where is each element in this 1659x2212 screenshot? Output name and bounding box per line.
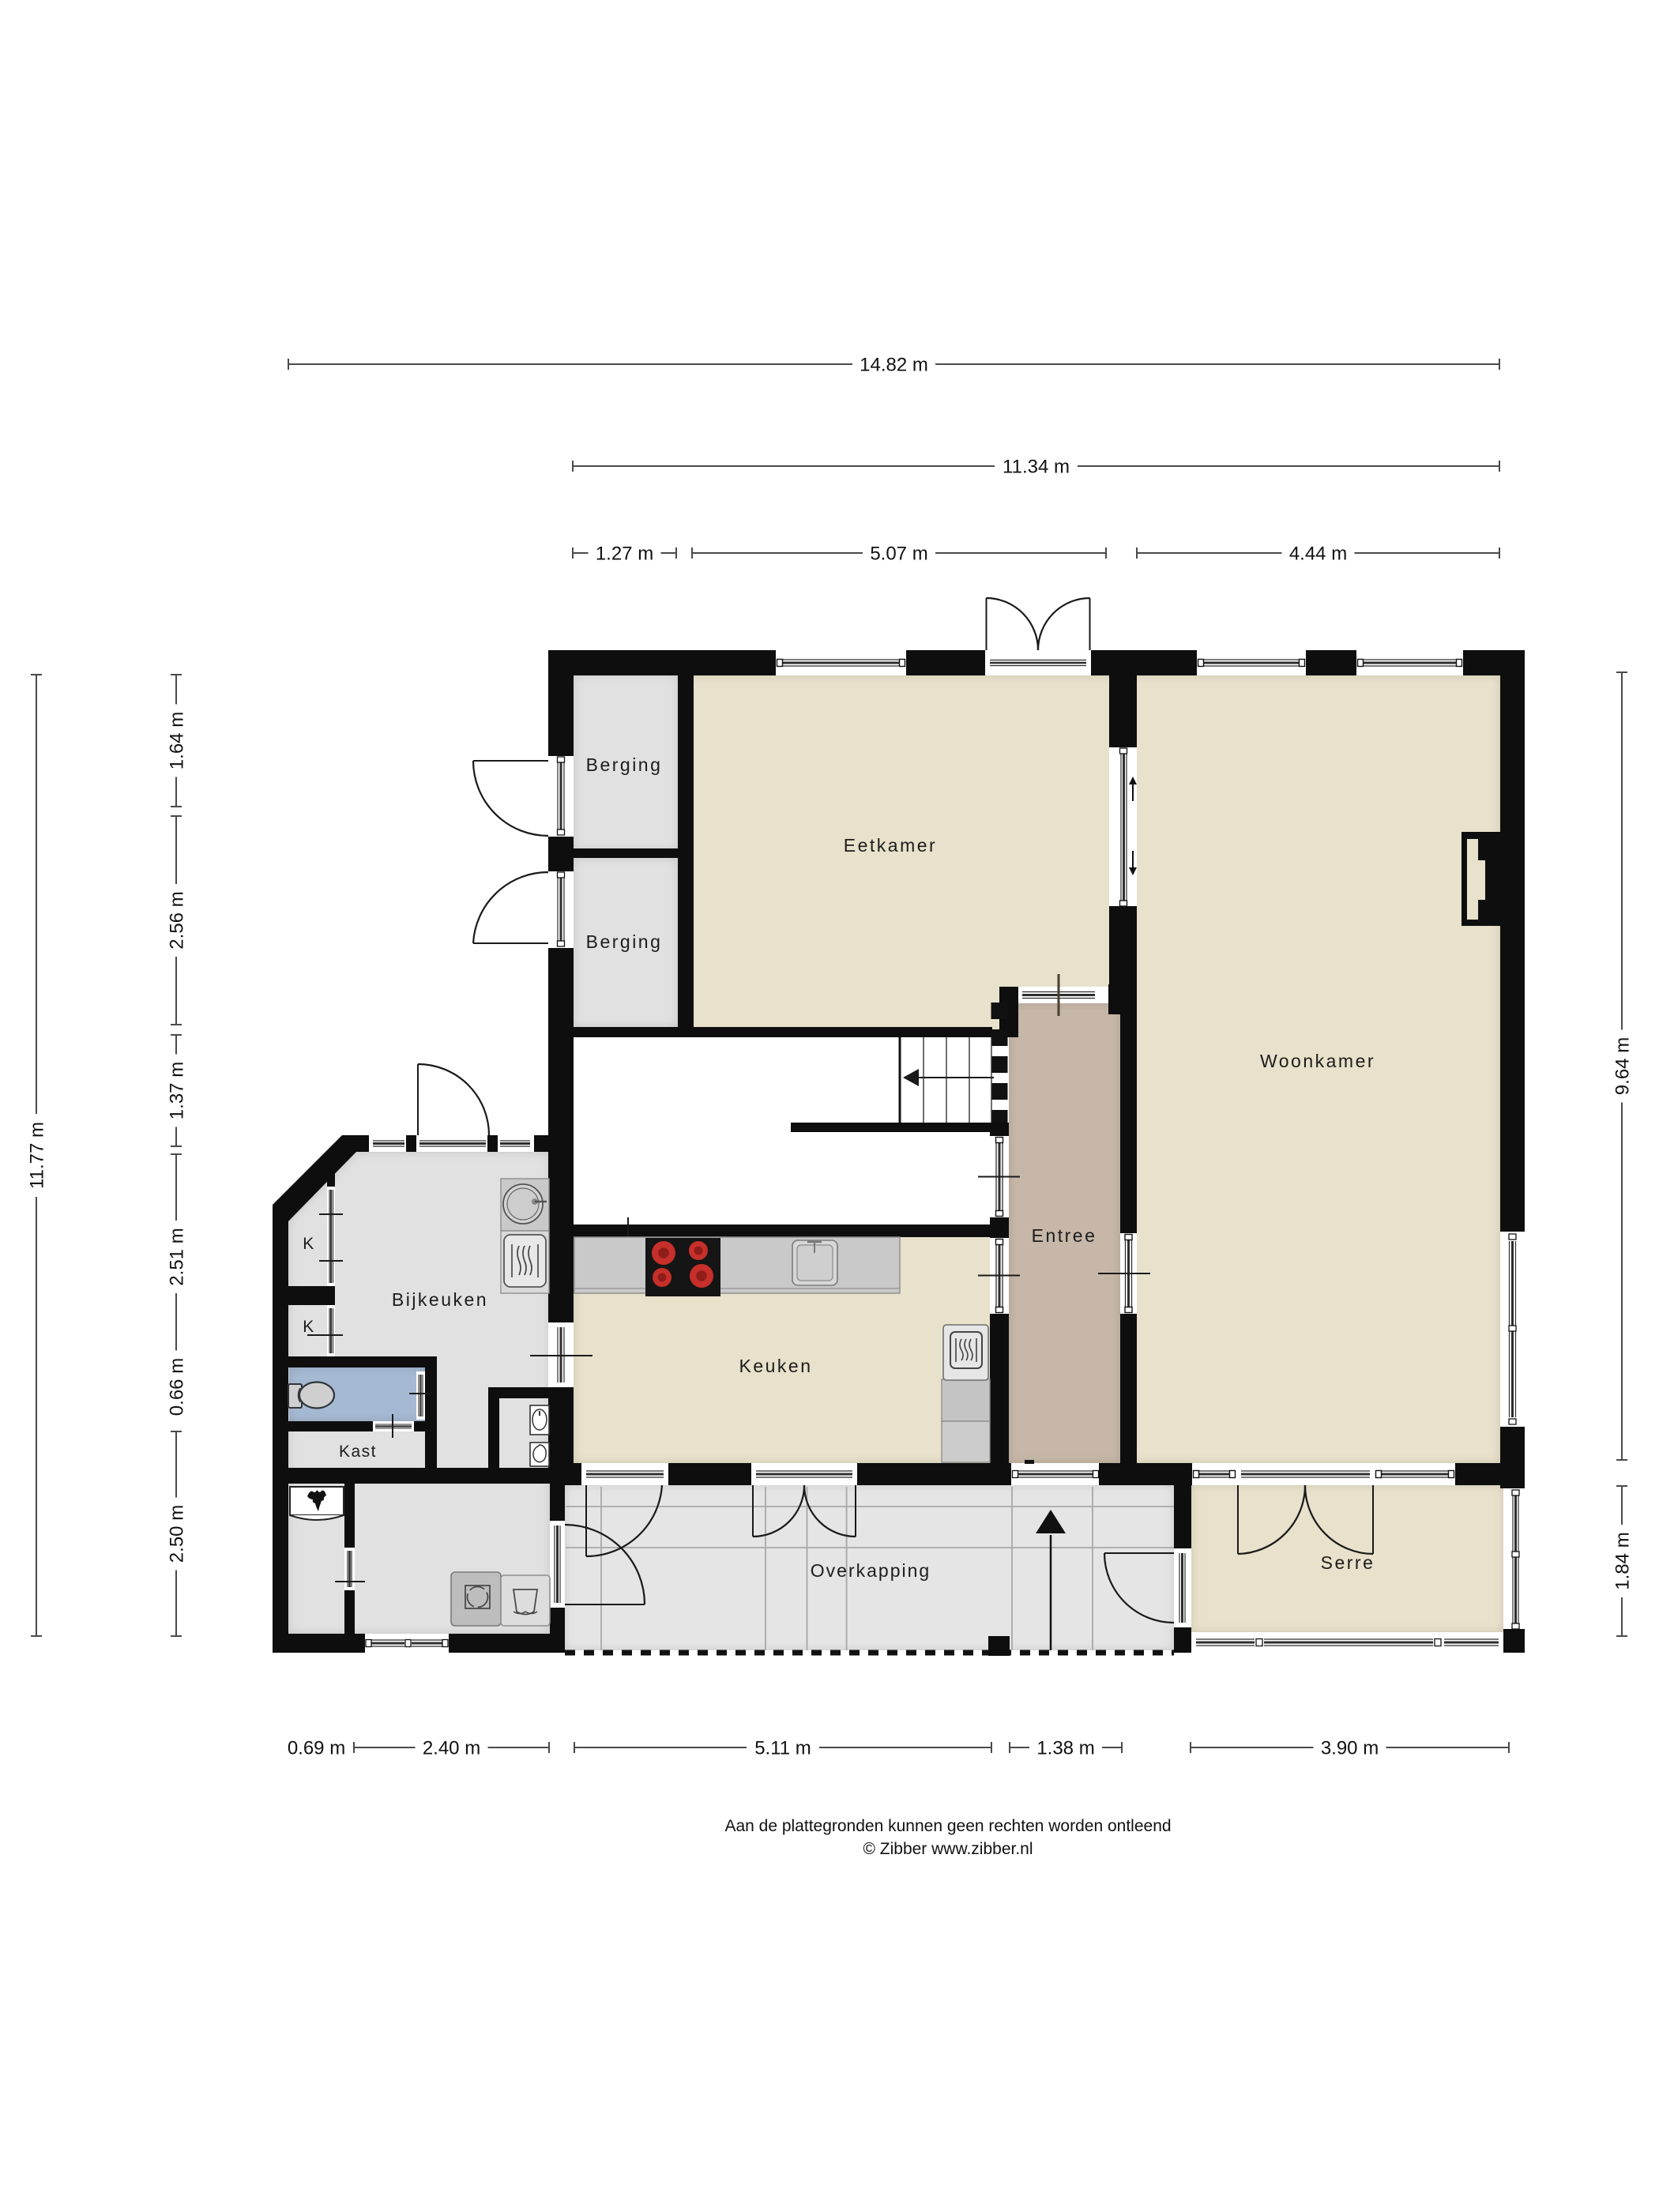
svg-text:11.34 m: 11.34 m — [1003, 457, 1070, 478]
svg-text:Woonkamer: Woonkamer — [1260, 1051, 1375, 1071]
svg-text:Keuken: Keuken — [739, 1356, 812, 1376]
svg-text:Berging: Berging — [586, 754, 663, 775]
svg-text:Berging: Berging — [586, 931, 663, 952]
svg-text:1.37 m: 1.37 m — [167, 1062, 188, 1119]
svg-text:5.11 m: 5.11 m — [754, 1738, 811, 1759]
svg-text:Bijkeuken: Bijkeuken — [392, 1289, 488, 1310]
svg-text:2.56 m: 2.56 m — [167, 891, 188, 949]
svg-text:5.07 m: 5.07 m — [870, 544, 927, 565]
svg-text:Eetkamer: Eetkamer — [844, 835, 937, 856]
svg-text:Entree: Entree — [1032, 1225, 1097, 1246]
svg-text:K: K — [303, 1318, 315, 1336]
svg-text:4.44 m: 4.44 m — [1289, 544, 1347, 565]
svg-text:1.38 m: 1.38 m — [1036, 1738, 1094, 1759]
svg-text:Aan de plattegronden kunnen ge: Aan de plattegronden kunnen geen rechten… — [724, 1817, 1171, 1835]
svg-text:3.90 m: 3.90 m — [1321, 1738, 1379, 1759]
svg-text:1.27 m: 1.27 m — [596, 544, 653, 565]
svg-text:9.64 m: 9.64 m — [1612, 1037, 1634, 1095]
svg-text:1.64 m: 1.64 m — [167, 712, 188, 769]
svg-text:Overkapping: Overkapping — [811, 1560, 931, 1581]
svg-text:Serre: Serre — [1321, 1552, 1375, 1573]
svg-text:2.40 m: 2.40 m — [423, 1738, 480, 1759]
svg-text:2.51 m: 2.51 m — [167, 1228, 188, 1285]
svg-text:0.66 m: 0.66 m — [167, 1358, 188, 1416]
svg-text:K: K — [303, 1235, 315, 1253]
svg-text:11.77 m: 11.77 m — [27, 1122, 48, 1189]
svg-text:© Zibber www.zibber.nl: © Zibber www.zibber.nl — [863, 1840, 1033, 1858]
svg-text:1.84 m: 1.84 m — [1612, 1532, 1634, 1589]
svg-text:Kast: Kast — [339, 1443, 377, 1461]
svg-text:0.69 m: 0.69 m — [288, 1738, 345, 1759]
svg-text:2.50 m: 2.50 m — [167, 1505, 188, 1563]
svg-text:14.82 m: 14.82 m — [860, 355, 928, 376]
